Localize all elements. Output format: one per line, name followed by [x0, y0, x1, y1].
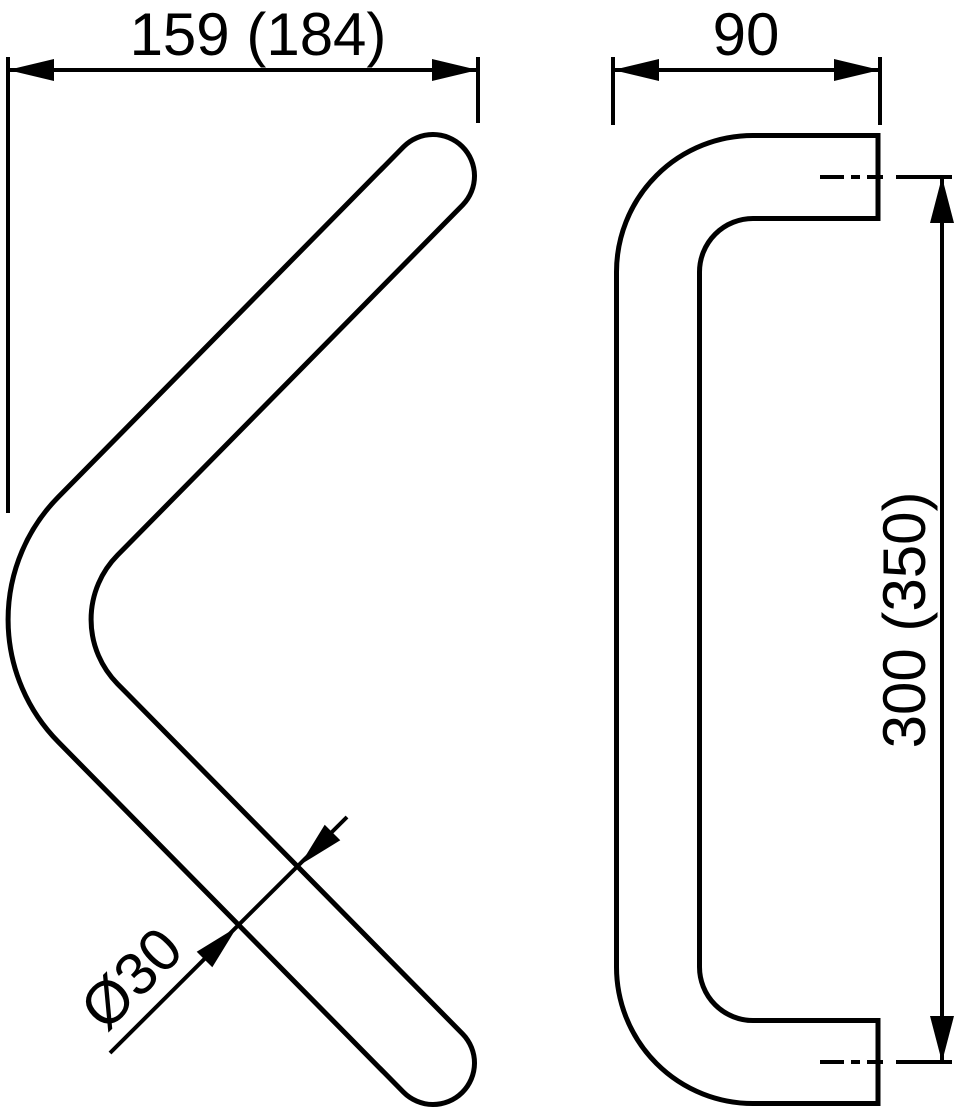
height-dimension-label: 300 (350) [871, 492, 938, 749]
width-arrow-right-icon [432, 59, 478, 81]
technical-drawing-canvas: 159 (184) Ø30 [0, 0, 958, 1115]
drawing-sheet: 159 (184) Ø30 [0, 0, 958, 1115]
width-arrow-left-icon [8, 59, 54, 81]
front-view: 159 (184) Ø30 [8, 1, 478, 1063]
height-arrow-top-icon [930, 177, 954, 223]
diameter-dimension-label: Ø30 [68, 915, 196, 1043]
side-height-dimension: 300 (350) [871, 177, 954, 1062]
front-tube-outline [50, 176, 433, 1063]
depth-arrow-left-icon [613, 59, 659, 81]
height-arrow-bottom-icon [930, 1016, 954, 1062]
width-dimension-label: 159 (184) [130, 1, 387, 68]
side-depth-dimension: 90 [613, 1, 880, 125]
side-view: 90 300 (350) [613, 1, 954, 1106]
side-tube-body [658, 177, 878, 1062]
depth-dimension-label: 90 [713, 1, 780, 68]
depth-arrow-right-icon [834, 59, 880, 81]
